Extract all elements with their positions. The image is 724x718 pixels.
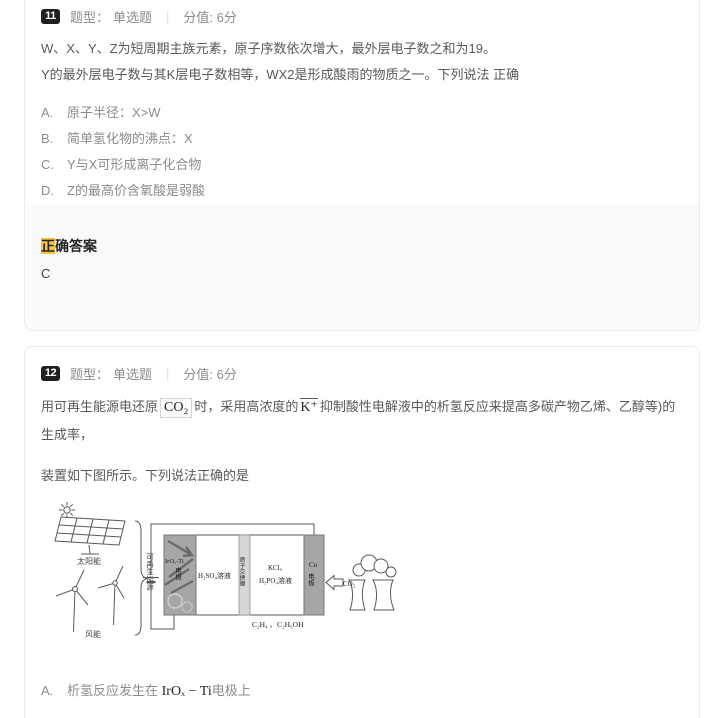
question-12-stem-line-2: 装置如下图所示。下列说法正确的是 <box>41 463 683 489</box>
wind-turbine-icon <box>98 566 124 625</box>
question-11-options: A. 原子半径：X>W B. 简单氢化物的沸点：X C. Y与X可形成离子化合物… <box>41 100 683 204</box>
option-letter: D. <box>41 178 67 204</box>
question-11-header: 11 题型： 单选题 | 分值: 6分 <box>25 0 699 24</box>
question-score: 分值: 6分 <box>183 364 236 383</box>
wind-turbine-icon <box>56 570 88 632</box>
products-label: C₂H₄ 、C₂H₅OH <box>252 620 304 629</box>
question-card-12: 12 题型： 单选题 | 分值: 6分 用可再生能源电还原CO₂时，采用高浓度的… <box>24 346 700 718</box>
question-number-badge: 11 <box>41 9 60 24</box>
formula-co2: CO₂ <box>160 398 192 418</box>
answer-heading-rest: 确答案 <box>55 238 97 254</box>
question-12-header: 12 题型： 单选题 | 分值: 6分 <box>25 347 699 381</box>
question-type-label: 题型： <box>70 7 109 26</box>
co2-label: CO₂ <box>343 580 356 588</box>
power-plant-icon <box>349 555 396 610</box>
option-text-pre: 析氢反应发生在 <box>67 683 162 698</box>
question-card-11: 11 题型： 单选题 | 分值: 6分 W、X、Y、Z为短周期主族元素，原子序数… <box>24 0 700 331</box>
anolyte-label: H₂SO₄溶液 <box>198 571 231 580</box>
option-text: Z的最高价含氧酸是弱酸 <box>67 178 205 204</box>
question-11-stem: W、X、Y、Z为短周期主族元素，原子序数依次增大，最外层电子数之和为19。 Y的… <box>41 36 683 88</box>
stem-text: 时，采用高浓度的 <box>194 399 298 414</box>
exam-review-page: 11 题型： 单选题 | 分值: 6分 W、X、Y、Z为短周期主族元素，原子序数… <box>0 0 724 718</box>
header-divider: | <box>166 366 169 381</box>
option-text: 析氢反应发生在 IrOₓ − Ti电极上 <box>67 679 251 704</box>
stem-line-1: W、X、Y、Z为短周期主族元素，原子序数依次增大，最外层电子数之和为19。 <box>41 36 683 62</box>
header-divider: | <box>166 9 169 24</box>
solar-label: 太阳能 <box>77 556 101 566</box>
question-type-value: 单选题 <box>113 7 152 26</box>
option-text: Y与X可形成离子化合物 <box>67 152 201 178</box>
question-12-options: A. 析氢反应发生在 IrOₓ − Ti电极上 B. Cl⁻从 Cu 电极迁移到… <box>41 679 683 718</box>
question-number-badge: 12 <box>41 366 60 381</box>
correct-answer-section: 正确答案 C <box>25 204 699 331</box>
question-12-stem-line-1: 用可再生能源电还原CO₂时，采用高浓度的K⁺抑制酸性电解液中的析氢反应来提高多碳… <box>41 393 683 449</box>
highlighted-char: 正 <box>41 238 55 254</box>
option-b: B. 简单氢化物的沸点：X <box>41 126 683 152</box>
anode-label-1: IrOₓ-Ti <box>165 558 184 565</box>
option-text: 原子半径：X>W <box>67 100 161 126</box>
stem-line-2: Y的最外层电子数与其K层电子数相等，WX2是形成酸雨的物质之一。下列说法 正确 <box>41 62 683 88</box>
renewable-label: 可再生能源 <box>145 553 154 592</box>
formula-k-plus: K⁺ <box>300 398 318 416</box>
membrane-label: 质子交换膜 <box>238 556 245 587</box>
correct-answer-heading: 正确答案 <box>41 236 683 256</box>
question-12-diagram: 太阳能 风能 可再生能源 IrOₓ-Ti 电极 H₂SO₄溶液 质子交换膜 KC… <box>47 497 683 647</box>
wind-label: 风能 <box>85 629 101 639</box>
option-a: A. 析氢反应发生在 IrOₓ − Ti电极上 <box>41 679 683 704</box>
cathode-label-1: Cu <box>309 561 318 569</box>
solar-panel-icon <box>55 517 125 554</box>
question-type-value: 单选题 <box>113 364 152 383</box>
sun-icon <box>59 502 75 518</box>
option-letter: B. <box>41 126 67 152</box>
question-score: 分值: 6分 <box>183 7 236 26</box>
option-d: D. Z的最高价含氧酸是弱酸 <box>41 178 683 204</box>
catholyte-label-1: KCl、 <box>268 564 287 572</box>
electrolysis-diagram: 太阳能 风能 可再生能源 IrOₓ-Ti 电极 H₂SO₄溶液 质子交换膜 KC… <box>47 497 407 642</box>
question-type-label: 题型： <box>70 364 109 383</box>
catholyte-label-2: H₃PO₄溶液 <box>259 576 292 585</box>
option-text-post: 电极上 <box>212 683 251 698</box>
option-c: C. Y与X可形成离子化合物 <box>41 152 683 178</box>
option-letter: A. <box>41 100 67 126</box>
formula-irox-ti: IrOₓ − Ti <box>162 684 212 699</box>
option-text: 简单氢化物的沸点：X <box>67 126 193 152</box>
option-letter: C. <box>41 152 67 178</box>
co2-arrow <box>326 576 343 590</box>
correct-answer-value: C <box>41 264 683 284</box>
option-a: A. 原子半径：X>W <box>41 100 683 126</box>
option-letter: A. <box>41 679 67 703</box>
stem-text: 用可再生能源电还原 <box>41 399 158 414</box>
